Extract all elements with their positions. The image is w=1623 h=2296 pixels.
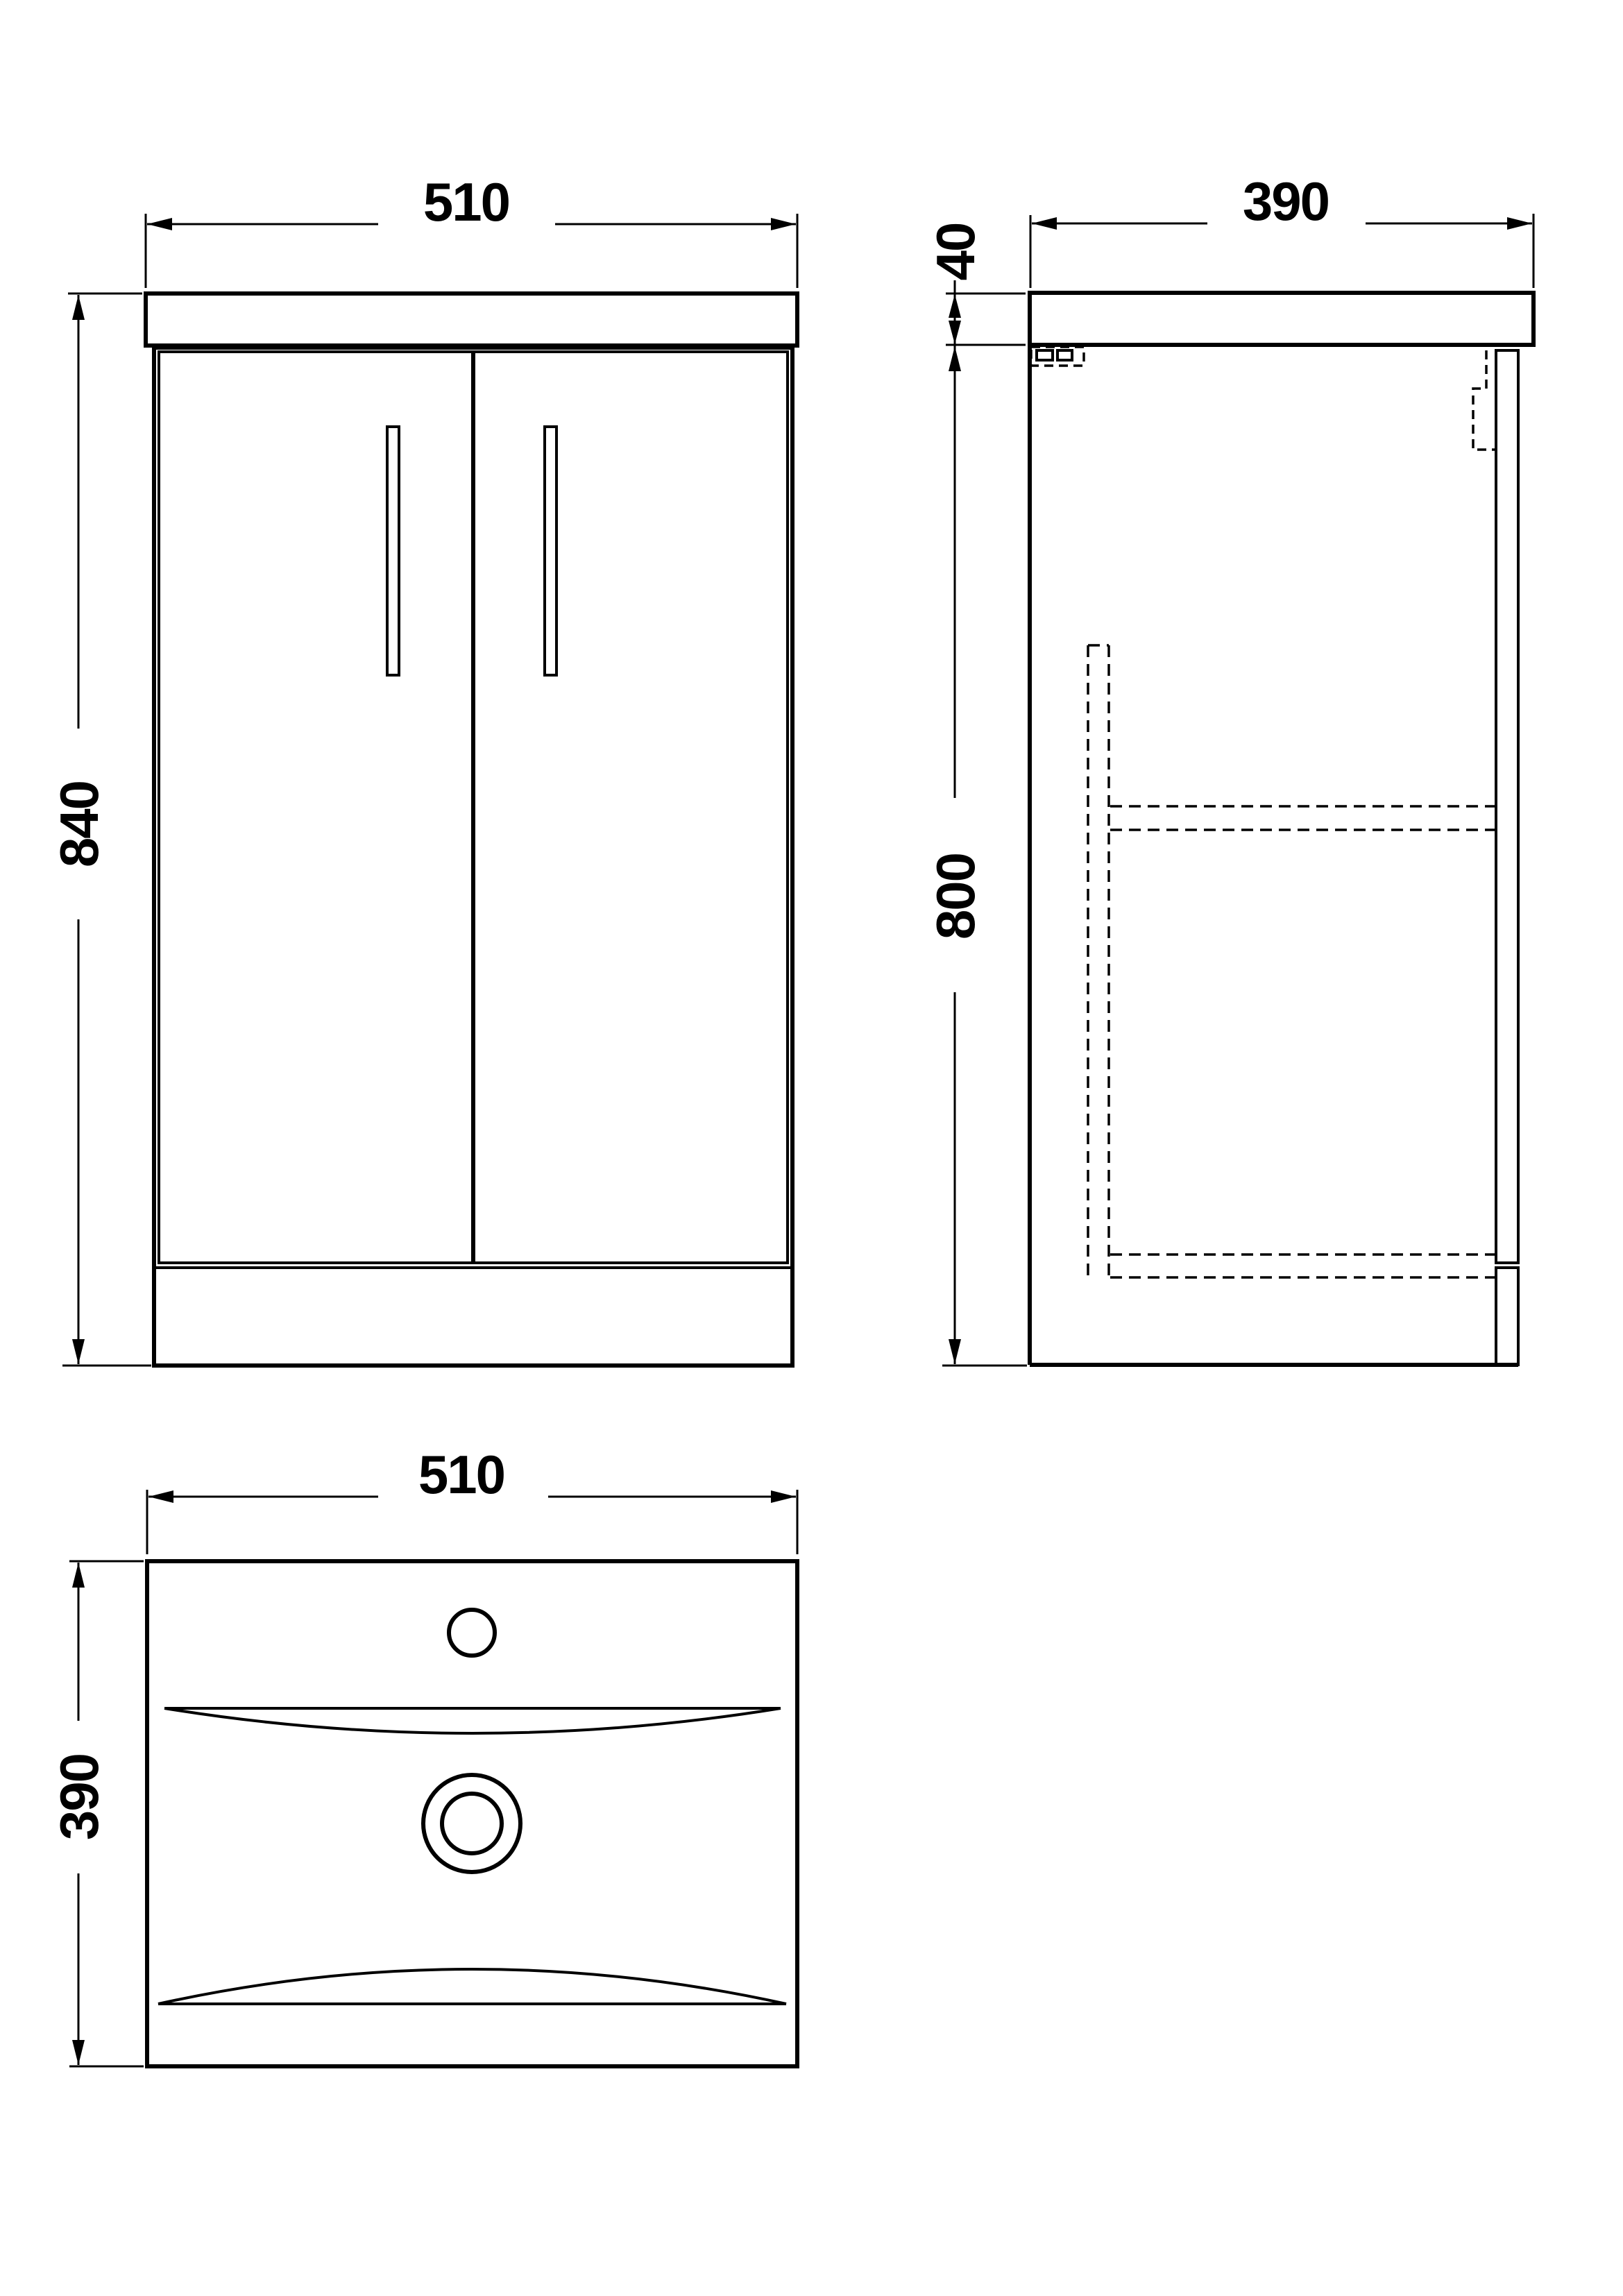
side-depth-dimension: 390 — [1030, 171, 1533, 288]
side-height-label: 800 — [925, 853, 986, 939]
plan-width-dimension: 510 — [147, 1444, 797, 1554]
right-door-handle — [545, 427, 556, 675]
plan-basin-outline — [147, 1561, 797, 2066]
side-view: 390 40 800 — [925, 171, 1533, 1366]
plan-depth-dimension: 390 — [49, 1561, 144, 2066]
plan-width-label: 510 — [418, 1444, 504, 1505]
plan-depth-label: 390 — [49, 1754, 110, 1840]
side-back-panel-hidden — [1088, 645, 1109, 1279]
front-width-label: 510 — [423, 171, 509, 232]
arrow-right-icon — [1507, 217, 1532, 230]
plan-tap-hole — [449, 1610, 495, 1656]
side-base-hidden — [1110, 1255, 1495, 1277]
arrow-down-icon — [72, 2040, 85, 2065]
arrow-up-icon — [72, 295, 85, 320]
arrow-right-icon — [771, 1490, 796, 1503]
arrow-down-icon — [72, 1339, 85, 1364]
arrow-left-icon — [147, 218, 172, 230]
side-worktop-label: 40 — [925, 223, 986, 281]
arrow-left-icon — [148, 1490, 173, 1503]
side-height-dimension: 800 — [925, 346, 1027, 1366]
front-height-dimension: 840 — [49, 294, 151, 1366]
arrow-up-icon — [949, 346, 961, 371]
plan-bowl-back-edge — [164, 1708, 781, 1733]
plan-view: 510 390 — [49, 1444, 797, 2066]
side-wall-bracket — [1031, 347, 1084, 366]
arrow-down-icon — [949, 321, 961, 344]
arrow-up-icon — [949, 294, 961, 318]
front-width-dimension: 510 — [146, 171, 797, 288]
plan-waste-drain — [423, 1775, 520, 1872]
side-countertop — [1030, 293, 1533, 345]
drawing-sheet: 510 840 — [0, 0, 1623, 2296]
arrow-right-icon — [771, 218, 796, 230]
side-shelf-hidden — [1110, 806, 1495, 830]
side-door-panel — [1496, 350, 1518, 1263]
side-plinth-panel — [1496, 1268, 1518, 1365]
arrow-up-icon — [72, 1563, 85, 1588]
side-hinge-hidden — [1473, 350, 1497, 450]
side-depth-label: 390 — [1243, 171, 1329, 232]
vanity-unit-technical-drawing: 510 840 — [0, 0, 1623, 2296]
front-height-label: 840 — [49, 781, 110, 867]
arrow-left-icon — [1032, 217, 1057, 230]
front-countertop — [146, 294, 797, 346]
arrow-down-icon — [949, 1339, 961, 1364]
side-worktop-dimension: 40 — [925, 223, 1026, 798]
left-door-handle — [387, 427, 399, 675]
plan-bowl-front-edge — [158, 1969, 786, 2004]
front-view: 510 840 — [49, 171, 797, 1366]
